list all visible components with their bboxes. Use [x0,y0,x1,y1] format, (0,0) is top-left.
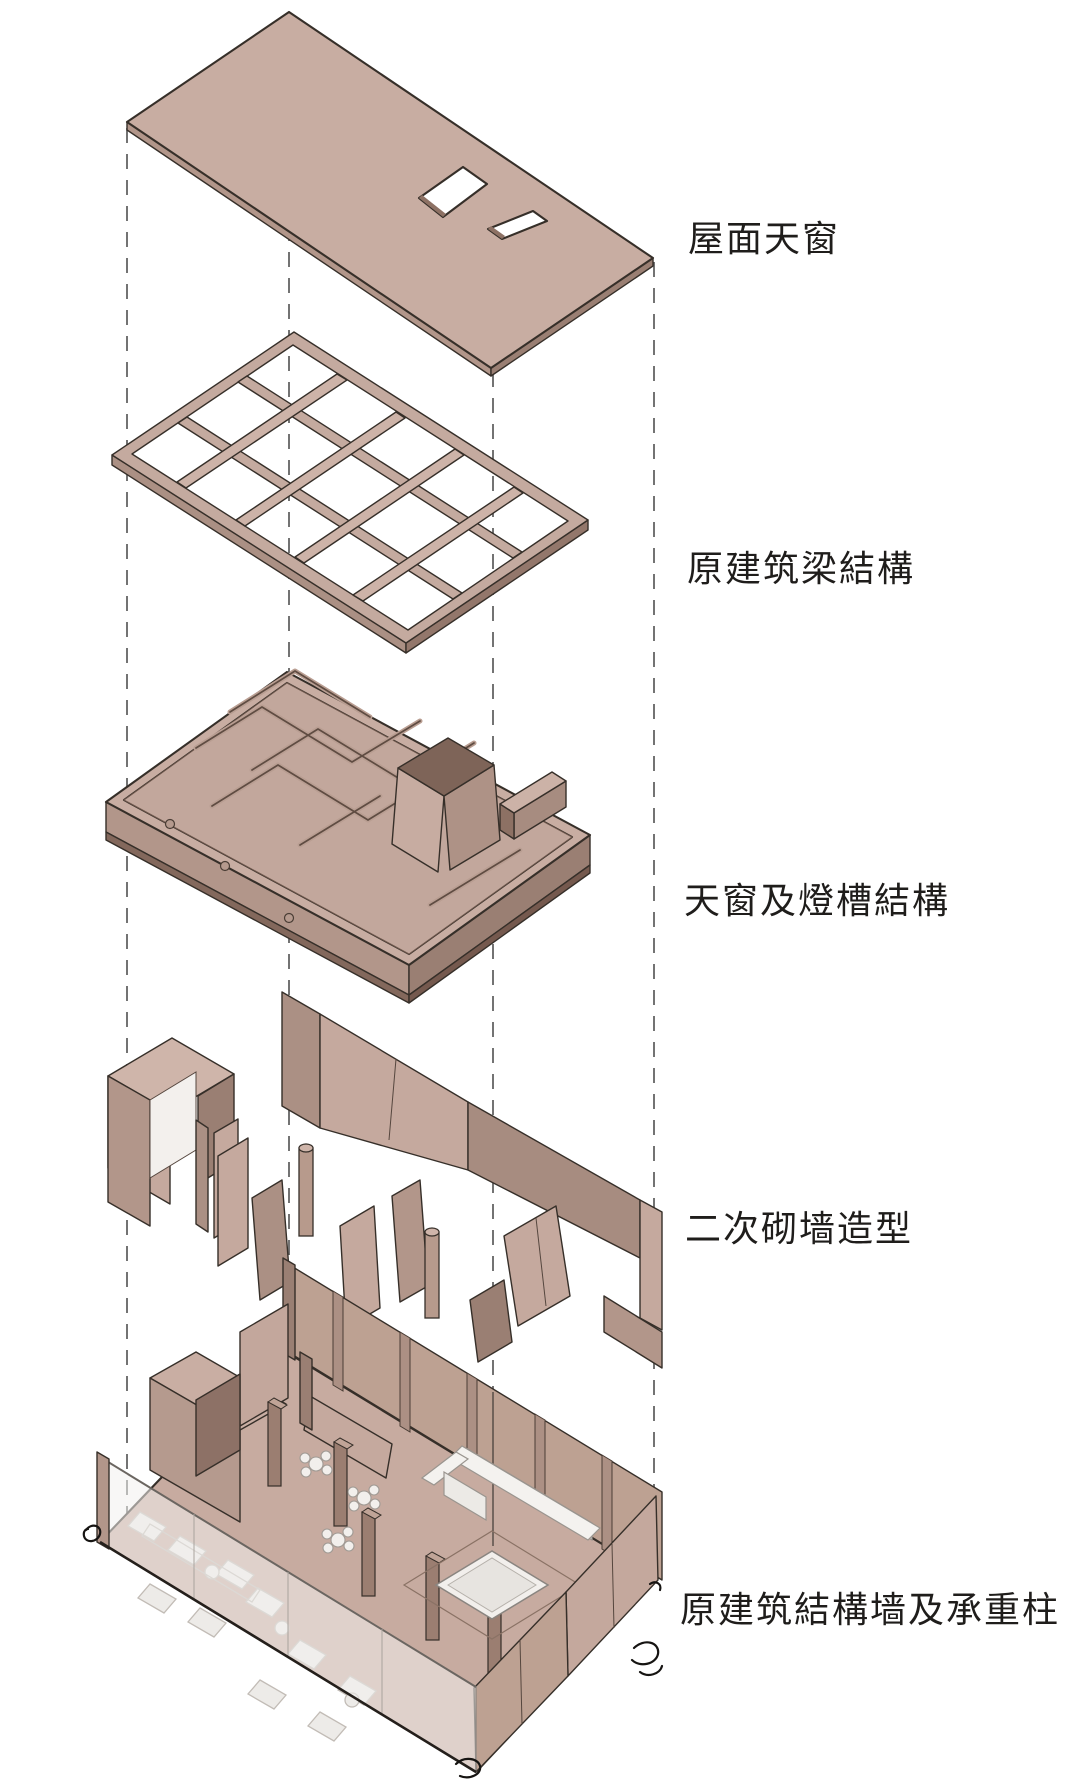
cylinder-column [425,1228,439,1318]
masonry-wall-layer [108,992,662,1368]
beam-longitudinal [238,376,522,558]
exploded-axon-diagram: 屋面天窗 原建筑梁結構 天窗及燈槽結構 二次砌墙造型 原建筑結構墙及承重柱 [0,0,1080,1779]
base-structure-layer [84,1258,662,1777]
roof-skylight-layer [127,12,653,376]
zigzag-wall [282,992,640,1258]
label-secondary-masonry-walls: 二次砌墙造型 [685,1210,913,1250]
beam-grid-base-left [112,455,406,653]
label-skylight-lightcove-structure: 天窗及燈槽結構 [684,882,950,922]
label-roof-skylight: 屋面天窗 [688,220,840,260]
cylinder-column [299,1144,313,1236]
beam-longitudinal [178,417,462,599]
label-original-structural-walls-columns: 原建筑結構墙及承重柱 [680,1591,1060,1631]
beam-grid-frame [112,332,588,643]
label-original-beam-structure: 原建筑梁結構 [687,550,915,590]
beam-grid-layer [112,332,588,653]
skylight-lightcove-layer [106,671,590,1003]
